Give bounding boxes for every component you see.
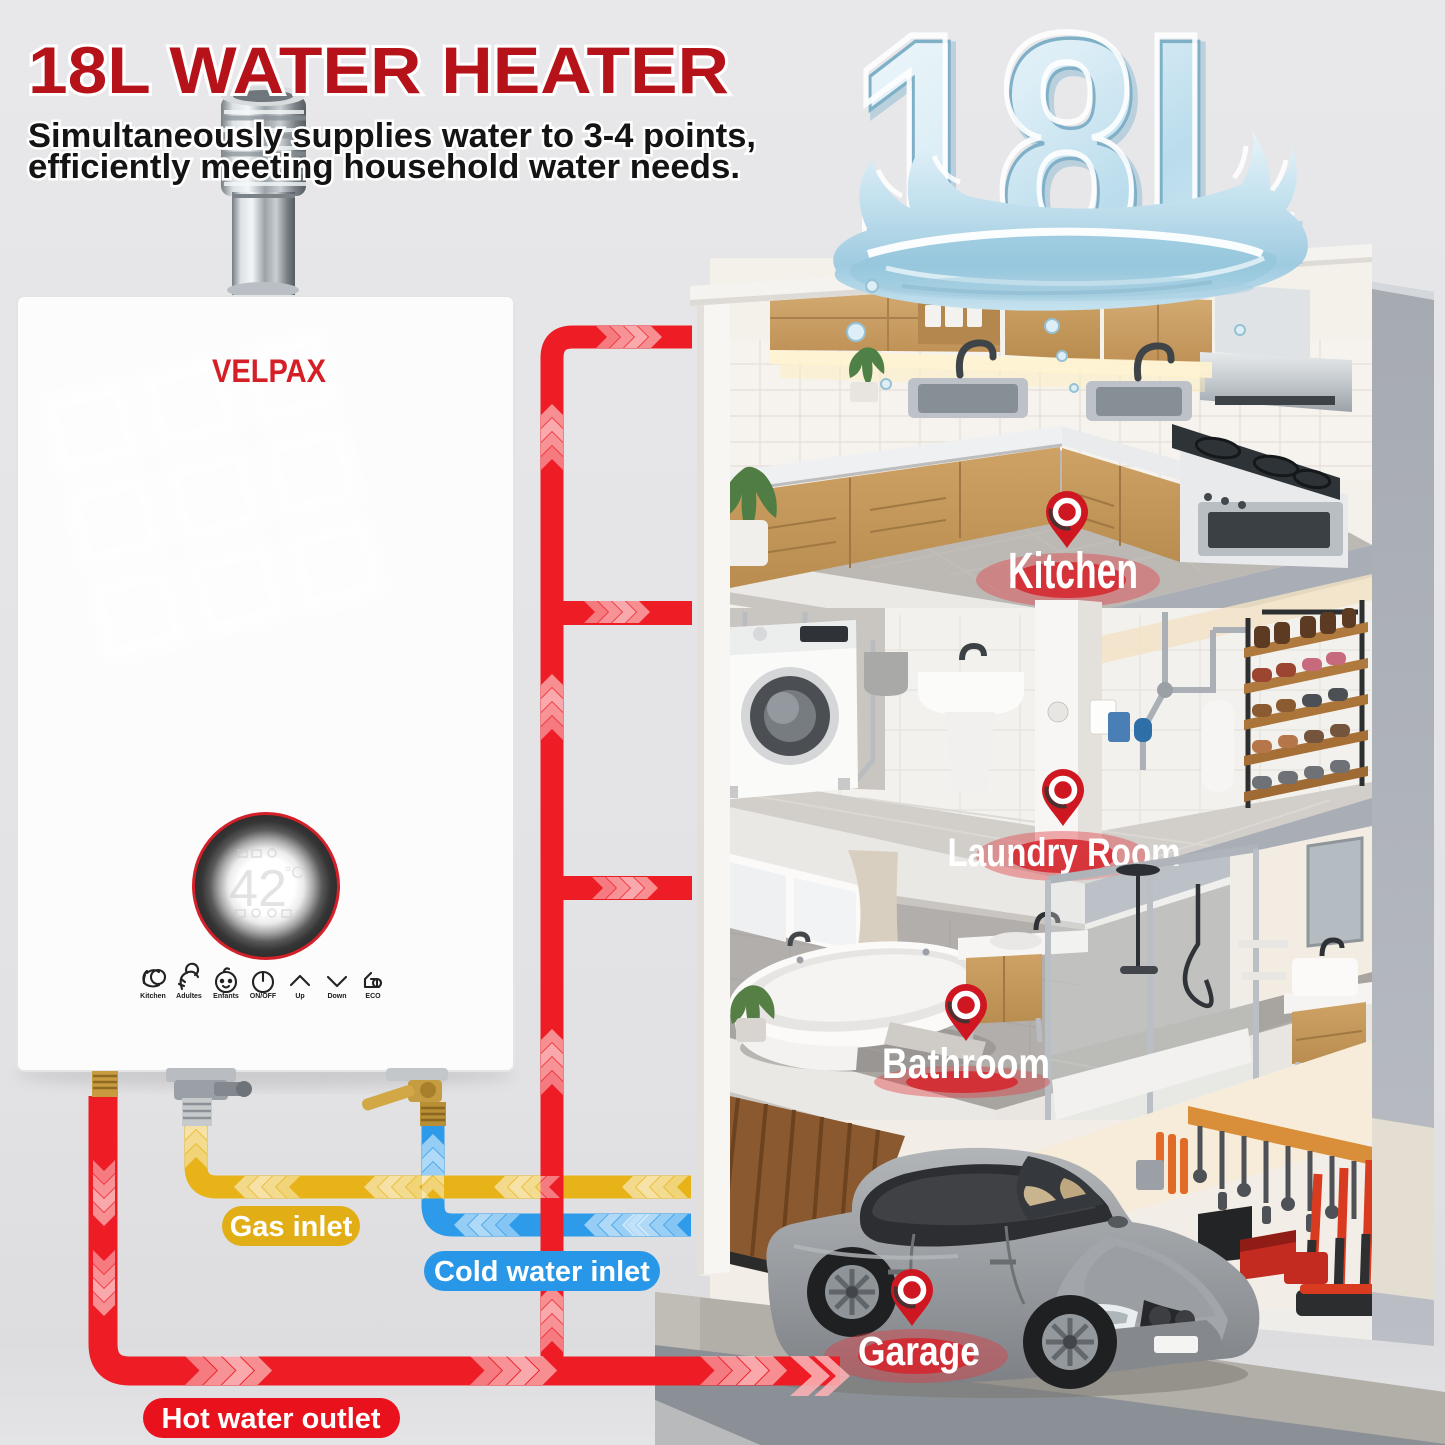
- svg-text:Bathroom: Bathroom: [882, 1040, 1050, 1088]
- svg-text:Hot water outlet: Hot water outlet: [161, 1403, 380, 1435]
- svg-text:Gas inlet: Gas inlet: [230, 1211, 353, 1243]
- svg-text:Kitchen: Kitchen: [1008, 542, 1138, 599]
- svg-text:Cold water inlet: Cold water inlet: [434, 1256, 650, 1288]
- svg-text:°C: °C: [284, 863, 303, 882]
- svg-text:VELPAX: VELPAX: [212, 353, 327, 389]
- svg-text:Enfants: Enfants: [213, 993, 239, 1000]
- svg-text:Garage: Garage: [858, 1328, 980, 1374]
- svg-text:18L WATER HEATER: 18L WATER HEATER: [28, 33, 729, 107]
- svg-text:Down: Down: [327, 993, 346, 1000]
- svg-text:ECO: ECO: [365, 993, 381, 1000]
- svg-text:Adultes: Adultes: [176, 993, 202, 1000]
- svg-text:ON/OFF: ON/OFF: [250, 993, 277, 1000]
- svg-text:Kitchen: Kitchen: [140, 993, 166, 1000]
- svg-text:efficiently meeting household: efficiently meeting household water need…: [28, 148, 740, 186]
- svg-text:Up: Up: [295, 993, 304, 1000]
